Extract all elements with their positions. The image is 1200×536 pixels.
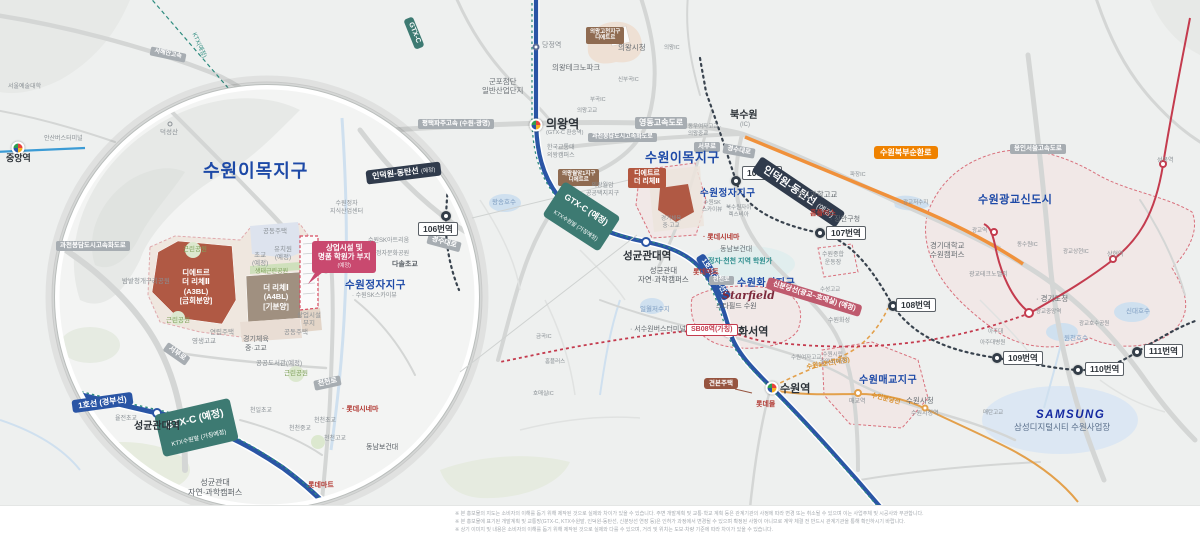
lotte-cinema-label: · 롯데시네마 xyxy=(703,234,739,243)
sindae-lake-label: 신대호수 xyxy=(1126,308,1150,316)
technopark-label: 의왕테크노파크 xyxy=(552,63,600,72)
terminal-label: · 서수원버스터미널 xyxy=(630,326,686,335)
dangjeong-label: 당정역 xyxy=(542,42,561,51)
inset-park-label: 근린공원 xyxy=(284,370,308,378)
inset-sports-school-label: 경기체육 중·고교 xyxy=(243,336,269,354)
station-111-box: 111번역 xyxy=(1144,344,1183,358)
inset-kindergarten-label: 유치원 (예정) xyxy=(274,246,292,262)
gwanggyo-city-label: 수원광교신도시 xyxy=(978,194,1052,208)
station-111-marker xyxy=(1132,347,1142,357)
station-108-box: 108번역 xyxy=(896,298,936,312)
gunpo-complex-label: 군포첨단 일반산업단지 xyxy=(482,77,523,96)
band-text: 수원북부순환로 xyxy=(880,148,932,157)
cheoncheon-ro-label: 천천로 xyxy=(709,276,734,285)
ajou-hosp-label: 아주대병원 xyxy=(980,340,1005,347)
pajang-ic-label: 파장IC xyxy=(850,172,866,179)
kyonggi-univ-label: 경기대학교 수원캠퍼스 xyxy=(930,241,965,260)
maegyo-station-marker xyxy=(854,389,862,397)
inset-gwacheon-road-label: 과천봉담도시고속화도로 xyxy=(56,241,130,251)
maegyo-district-label: 수원매교지구 xyxy=(859,375,917,388)
bugok-ic-label: 부곡IC xyxy=(590,97,606,104)
city-library-label: 수원시립 중앙도서관 xyxy=(820,352,845,366)
inset-lotte-mart-label: 롯데마트 xyxy=(308,482,334,491)
inset-station-106-box: 106번역 xyxy=(418,222,458,236)
nw-schools-label: 동우여자고교 · 의왕중교 xyxy=(688,124,722,138)
inset-lotte-cinema-label: · 롯데시네마 xyxy=(342,406,378,415)
callout-sub: (예정) xyxy=(337,263,351,269)
uiwang-hall-label: 의왕시청 xyxy=(618,43,646,52)
samsung-logo: SAMSUNG xyxy=(1036,408,1105,422)
inset-housing2-label: 공동주택 xyxy=(284,329,308,337)
inset-rowhouse-label: 연립주택 xyxy=(210,329,234,337)
inset-jeongja-park-label: 정자문화공원 xyxy=(376,251,409,259)
inset-title: 수원이목지구 xyxy=(203,160,308,183)
inset-yeongsaeng-label: 영생고교 xyxy=(192,338,216,346)
dangjeong-station-marker xyxy=(533,44,540,51)
uiwang-ic-label: 의왕IC xyxy=(664,45,680,52)
pyeongtaek-road-label: 평택파주고속 (수원-광명) xyxy=(418,119,494,129)
inset-dasol-label: 다솔초교 xyxy=(392,261,418,270)
hwaseo-station-label: 화서역 xyxy=(738,326,768,340)
inset-yuljeon-label: 율전초교 xyxy=(115,416,137,424)
suwon-station-marker xyxy=(766,382,779,395)
inset-skyview-label: · 수원SK스카이뷰 xyxy=(352,293,397,301)
disclaimer: ※ 본 홍보물의 지도는 소비자의 이해를 돕기 위해 제작된 것으로 실제와 … xyxy=(0,505,1200,536)
inset-housing-label: 공동주택 xyxy=(263,228,287,236)
homaesil-ic-label: 호매실IC xyxy=(533,391,554,398)
stadium-label: 수원종합 운동장 xyxy=(822,252,844,267)
gwacheon-road-label: 과천봉담도시고속화도로 xyxy=(588,133,657,142)
inset-parcel-a4-label: 더 리체Ⅰ (A4BL) [기분양] xyxy=(250,283,302,311)
starfield-kr-label: 스타필드 수원 xyxy=(716,303,757,312)
band-text: 인덕원-동탄선 xyxy=(372,166,420,181)
gwanggyo-station-label: 광교역 xyxy=(972,228,987,235)
suwon-station-label: 수원역 xyxy=(780,383,810,397)
gwanggyo-resv-label: 광교저수지 xyxy=(903,200,928,207)
inset-knowledge-center-label: 수원정자 지식산업센터 xyxy=(330,201,363,216)
homeplus2-label: 홈플러스 xyxy=(545,359,565,366)
jeongja-district-label: 수원정자지구 xyxy=(700,188,755,200)
inset-skku-station-label: 성균관대역 xyxy=(134,421,180,434)
woncheon-lake-label: 원천호수 xyxy=(1064,335,1088,343)
sanghyeon-station-label: 상현역 xyxy=(1107,252,1124,260)
maetan-label: 매탄고교 xyxy=(983,410,1003,417)
gj-station-label: 광교중앙역 xyxy=(1036,309,1061,316)
disclaimer-line: ※ 상기 이미지 및 내용은 소비자의 이해를 돕기 위해 제작된 것으로 실제… xyxy=(455,527,1192,535)
uiwang-high-label: 의왕고교 xyxy=(577,108,597,115)
techno-valley-label: 광교테크노밸리 xyxy=(969,272,1008,280)
inset-park-label: 근린공원 xyxy=(166,317,190,325)
inset-eco-park-label: 생태근린공원 xyxy=(255,269,288,277)
skku-station-marker xyxy=(641,237,651,247)
jungang-station-label: 중앙역 xyxy=(6,153,31,164)
gyeonggi-hall-label: · 경기도청 xyxy=(1036,294,1068,303)
yeongdong-road-label: 영동고속도로 xyxy=(635,117,687,129)
sb08-box: SB08역(가칭) xyxy=(686,324,738,336)
gocheon-box: 의왕고천지구 디에트르 xyxy=(586,27,624,44)
seoul-arts-label: 서울예술대학 xyxy=(8,84,41,92)
inset-elementary-label: 초교 (예정) xyxy=(252,252,268,268)
hwaseong-label: 수원화성 xyxy=(828,318,850,326)
samsung-name-label: 삼성디지털시티 수원사업장 xyxy=(1014,422,1110,433)
inset-commercial-callout: 상업시설 및 명품 학원가 부지(예정) xyxy=(312,241,376,273)
wangsong-lake-label: 왕송호수 xyxy=(492,199,516,207)
model-house-box: 견본주택 xyxy=(704,378,738,389)
seongbok-station-label: 성복역 xyxy=(1157,158,1174,166)
buksuwon-label: 북수원 xyxy=(730,110,758,123)
skyview-label: 수원SK 스카이뷰 xyxy=(702,200,722,214)
station-106-marker xyxy=(731,176,741,186)
gwanggyo-station-marker xyxy=(990,228,998,236)
box-text: 디에트르 더 리체Ⅱ xyxy=(634,170,660,185)
callout-text: 상업시설 및 명품 학원가 부지 xyxy=(318,243,370,261)
ansan-terminal-label: 안산버스터미널 xyxy=(44,136,83,144)
inset-cheoncheon-high-label: 천천고교 xyxy=(324,436,346,444)
station-109-box: 109번역 xyxy=(1003,351,1043,365)
sanghyeon-ic-label: 광교상현IC xyxy=(1063,249,1089,256)
inset-library-label: 공공도서관(예정) xyxy=(256,360,302,368)
uiwang-station-sub: (GTX-C 환승역) xyxy=(546,130,583,137)
dongsuwon-ic-label: 동수원IC xyxy=(1017,242,1038,249)
station-107-box: 107번역 xyxy=(826,226,866,240)
inset-cheonil-label: 천일초교 xyxy=(250,408,272,416)
inset-park-label: 근린공원 xyxy=(183,246,207,254)
inset-skku-campus-label: 성균관대 자연·과학캠퍼스 xyxy=(188,478,242,498)
geumgok-ic-label: 금곡IC xyxy=(536,334,552,341)
box-text: 견본주택 xyxy=(709,380,733,387)
station-109-marker xyxy=(992,353,1002,363)
cityhall-label: 수원시청 xyxy=(906,396,934,405)
box-text: 의왕월암1지구 디에트르 xyxy=(562,171,595,183)
rexvia-label: 북수원자이 렉스비아 xyxy=(726,205,751,219)
jangan-gu-label: · 장안구청 xyxy=(830,216,860,225)
sinbugok-ic-label: 신부곡IC xyxy=(618,77,639,84)
suwon-girls-label: 수원여자고교 xyxy=(791,355,821,362)
uiwang-station-marker xyxy=(530,119,543,132)
gwanggyo-jungang-station-marker xyxy=(1024,308,1034,318)
sports-school-label: 경기체육 중·고교 xyxy=(661,216,681,230)
imok-title-main: 수원이목지구 xyxy=(645,150,720,166)
hagwon-zone-label: 정자·천천 지역 학원가 xyxy=(708,258,772,267)
yongin-road-label: 용인서울고속도로 xyxy=(1010,144,1066,154)
cityhall-station-label: 수원시청역 xyxy=(911,411,939,419)
inset-frog-park-label: 밤밭청개구리공원 xyxy=(122,278,170,286)
promo-map: 수원이목지구 과천봉담도시고속화도로 덕성산 밤밭청개구리공원 근린공원 근린공… xyxy=(0,0,1200,536)
transport-univ-label: 한국교통대 의왕캠퍼스 xyxy=(547,145,575,160)
starfield-logo: Starfield xyxy=(722,289,775,303)
inset-dongnam-label: 동남보건대 xyxy=(366,444,398,453)
dongnam-label: 동남보건대 xyxy=(720,246,752,255)
suseong-label: 수성고교 xyxy=(820,287,840,294)
inset-jeongja-district-label: 수원정자지구 xyxy=(345,279,406,292)
inset-sk-artrium-label: 수원SK아트리움 xyxy=(368,238,409,246)
station-107-marker xyxy=(815,228,825,238)
ilwol-lake-label: 일월저수지 xyxy=(640,306,670,314)
disclaimer-line: ※ 본 홍보물에 표기된 개발계획 및 교통망(GTX-C, KTX수원발, 인… xyxy=(455,519,1192,527)
inset-cheoncheon-mid-label: 천천중교 xyxy=(289,426,311,434)
station-110-box: 110번역 xyxy=(1085,362,1124,376)
lake-park-label: 광교호수공원 xyxy=(1079,321,1109,328)
station-110-marker xyxy=(1073,365,1083,375)
inset-mountain-label: 덕성산 xyxy=(160,129,178,137)
skku-station-label: 성균관대역 xyxy=(623,250,671,263)
buksuwon-ic-label: (IC) xyxy=(740,122,750,130)
disclaimer-line: ※ 본 홍보물의 지도는 소비자의 이해를 돕기 위해 제작된 것으로 실제와 … xyxy=(455,511,1192,519)
band-sub: (예정) xyxy=(421,167,436,175)
inset-parcel-a3-label: 디에트르 더 리체Ⅱ (A3BL) [금회분양] xyxy=(170,268,222,306)
skku-campus-label: 성균관대 자연·과학캠퍼스 xyxy=(638,266,689,285)
ajou-label: 아주대 xyxy=(988,329,1003,336)
riche-box-main: 디에트르 더 리체Ⅱ xyxy=(628,168,666,188)
bukbu-ring-label: 수원북부순환로 xyxy=(874,146,938,159)
lotte-mall-label: 롯데몰 xyxy=(756,401,775,410)
box-text: 의왕고천지구 디에트르 xyxy=(590,29,620,41)
wolam-district-label: 의왕월암 공공택지지구 xyxy=(586,183,619,198)
inset-station-106-marker xyxy=(441,211,451,221)
inset-commercial-lot-label: 상업시설 부지 xyxy=(297,312,321,328)
science-high-label: 경기과학고교 xyxy=(796,190,837,199)
maegyo-station-label: 매교역 xyxy=(849,399,866,407)
inset-cheoncheon-elem-label: 천천초교 xyxy=(314,418,336,426)
